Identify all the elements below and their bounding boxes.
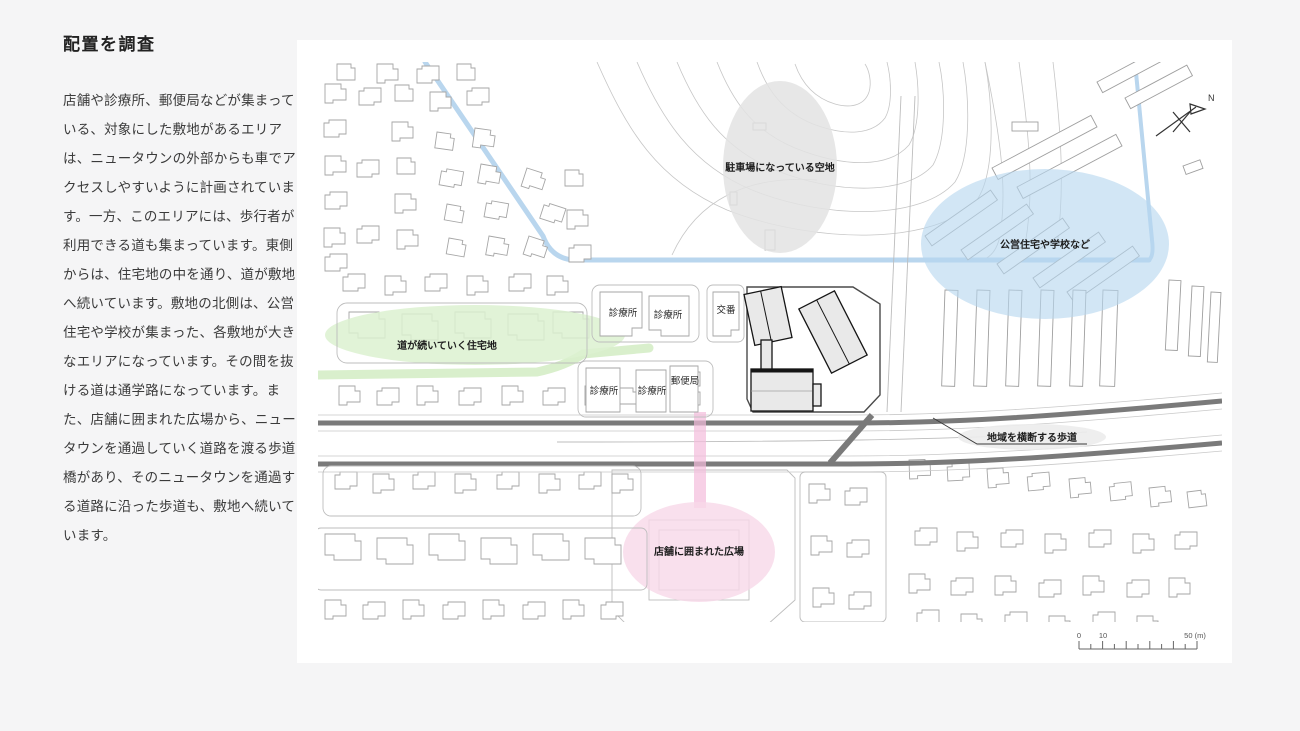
label-plaza: 店舗に囲まれた広場 — [654, 545, 744, 558]
label-crosswalk: 地域を横断する歩道 — [987, 431, 1077, 444]
label-clinic-1: 診療所 — [609, 307, 638, 319]
site-parcel — [744, 287, 880, 412]
scale-ten: 10 — [1099, 631, 1107, 640]
article-body: 店舗や診療所、郵便局などが集まっている、対象にした敷地があるエリアは、ニュータウ… — [63, 86, 301, 550]
scale-zero: 0 — [1077, 631, 1081, 640]
label-clinic-3: 診療所 — [590, 385, 619, 397]
scale-bar: 0 10 50 (m) — [1077, 631, 1206, 649]
label-public-housing: 公営住宅や学校など — [1000, 238, 1090, 251]
page-title: 配置を調査 — [63, 30, 301, 55]
pedestrian-bridge-highlight — [694, 412, 706, 508]
label-police: 交番 — [716, 304, 736, 316]
article-column: 配置を調査 店舗や診療所、郵便局などが集まっている、対象にした敷地があるエリアは… — [63, 30, 301, 550]
north-arrow: N — [1156, 93, 1215, 136]
page: 配置を調査 店舗や診療所、郵便局などが集まっている、対象にした敷地があるエリアは… — [0, 0, 1300, 731]
north-label: N — [1208, 93, 1215, 103]
site-plan-map: 駐車場になっている空地 公営住宅や学校など 道が続いていく住宅地 店舗に囲まれた… — [297, 40, 1232, 663]
map-panel: 駐車場になっている空地 公営住宅や学校など 道が続いていく住宅地 店舗に囲まれた… — [297, 40, 1232, 663]
label-residential-road: 道が続いていく住宅地 — [397, 339, 497, 352]
scale-end: 50 (m) — [1184, 631, 1206, 640]
label-clinic-4: 診療所 — [638, 385, 667, 397]
label-clinic-2: 診療所 — [654, 309, 683, 321]
residential-road-highlight — [325, 305, 625, 365]
label-post-office: 郵便局 — [671, 375, 700, 387]
label-parking: 駐車場になっている空地 — [725, 161, 835, 174]
